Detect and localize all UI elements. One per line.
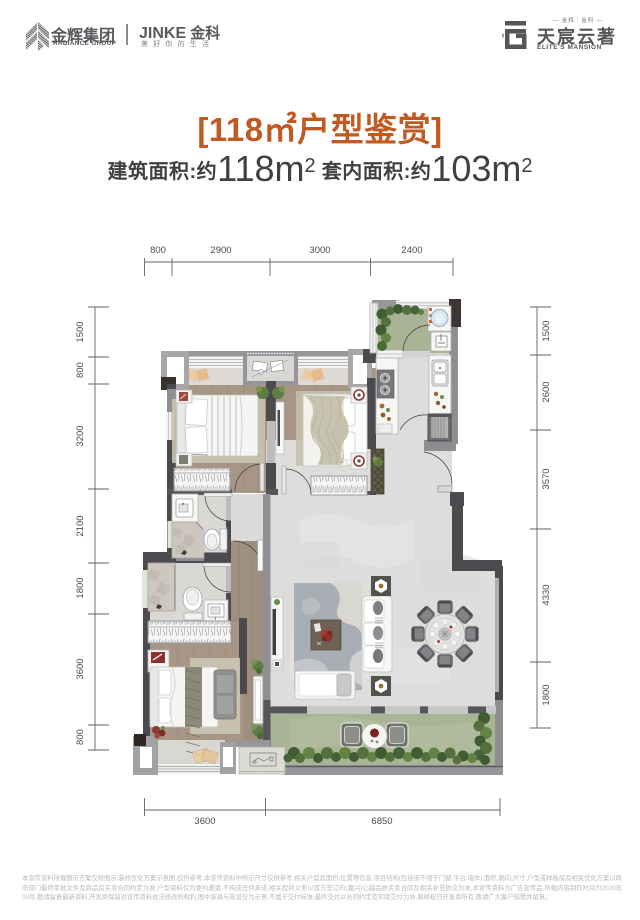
svg-text:800: 800 <box>75 362 86 378</box>
svg-text:800: 800 <box>150 245 166 256</box>
svg-text:4330: 4330 <box>541 584 552 605</box>
svg-text:1800: 1800 <box>541 684 552 705</box>
svg-text:1500: 1500 <box>75 321 86 342</box>
svg-text:2400: 2400 <box>401 245 422 256</box>
svg-text:3600: 3600 <box>75 658 86 679</box>
svg-text:3600: 3600 <box>194 816 215 827</box>
svg-text:1500: 1500 <box>541 320 552 341</box>
svg-text:3200: 3200 <box>75 425 86 446</box>
svg-text:1800: 1800 <box>75 577 86 598</box>
svg-text:800: 800 <box>75 729 86 745</box>
svg-text:3570: 3570 <box>541 468 552 489</box>
svg-text:2100: 2100 <box>75 515 86 536</box>
svg-text:3000: 3000 <box>309 245 330 256</box>
svg-text:2600: 2600 <box>541 381 552 402</box>
svg-text:2900: 2900 <box>210 245 231 256</box>
svg-text:6850: 6850 <box>371 816 392 827</box>
